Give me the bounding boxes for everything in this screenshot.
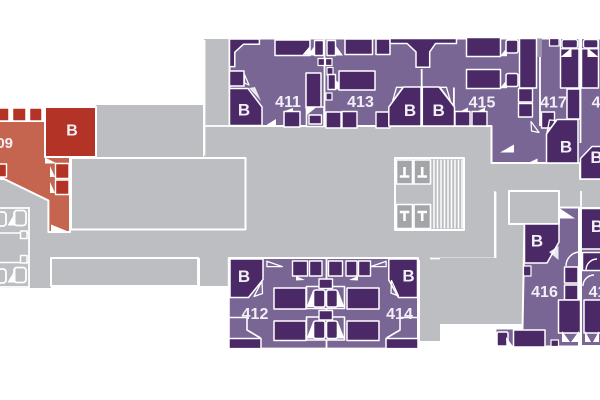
svg-text:409: 409 — [0, 135, 13, 152]
svg-text:413: 413 — [347, 94, 374, 111]
svg-text:B: B — [238, 101, 250, 120]
svg-text:B: B — [433, 101, 445, 120]
svg-text:B: B — [560, 138, 572, 157]
svg-text:412: 412 — [242, 306, 269, 323]
svg-text:411: 411 — [275, 94, 301, 111]
svg-text:416: 416 — [531, 284, 558, 301]
svg-text:418: 418 — [589, 284, 600, 301]
svg-text:B: B — [591, 217, 600, 236]
svg-text:B: B — [404, 101, 416, 120]
svg-text:B: B — [531, 232, 543, 251]
svg-text:415: 415 — [469, 95, 496, 112]
svg-text:B: B — [402, 267, 414, 286]
svg-text:419: 419 — [592, 95, 600, 112]
svg-text:414: 414 — [386, 306, 413, 323]
svg-text:417: 417 — [540, 95, 567, 112]
svg-text:B: B — [66, 123, 78, 140]
svg-text:B: B — [238, 267, 250, 286]
svg-text:B: B — [590, 148, 600, 167]
